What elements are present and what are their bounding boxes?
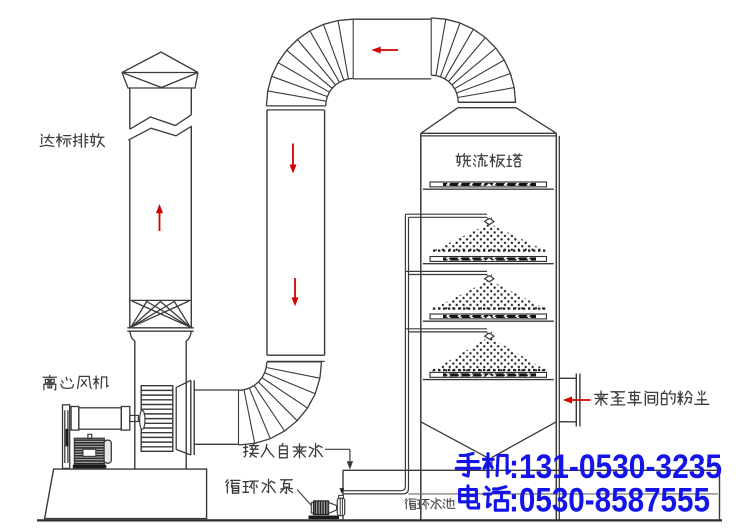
svg-text::131-0530-3235: :131-0530-3235 — [509, 448, 722, 486]
svg-text::0530-8587555: :0530-8587555 — [509, 482, 710, 520]
